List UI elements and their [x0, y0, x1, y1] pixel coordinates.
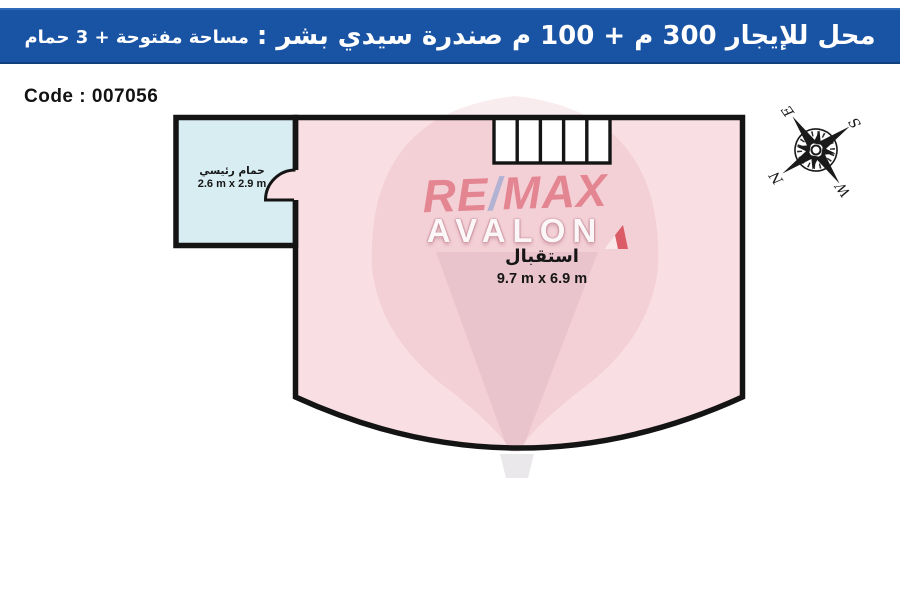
- compass-rose-icon: N E S W: [740, 74, 894, 227]
- compass-south-label: S: [846, 114, 865, 131]
- floor-plan-page: محل للإيجار 300 م + 100 م صندرة سيدي بشر…: [0, 0, 900, 599]
- watermark-avalon-text: AVALON: [400, 212, 630, 250]
- bathroom-dimensions: 2.6 m x 2.9 m: [176, 178, 288, 190]
- compass-west-label: W: [832, 178, 854, 200]
- reception-name: استقبال: [462, 246, 622, 267]
- compass-east-label: E: [779, 102, 799, 120]
- floor-plan-drawing: N E S W: [0, 0, 900, 599]
- reception-dimensions: 9.7 m x 6.9 m: [462, 271, 622, 287]
- compass-north-label: N: [766, 167, 787, 188]
- bathroom-name: حمام رئيسي: [176, 165, 288, 177]
- reception-label: استقبال 9.7 m x 6.9 m: [462, 246, 622, 287]
- stairs: [494, 117, 610, 163]
- bathroom-label: حمام رئيسي 2.6 m x 2.9 m: [176, 165, 288, 190]
- balloon-basket: [500, 454, 534, 478]
